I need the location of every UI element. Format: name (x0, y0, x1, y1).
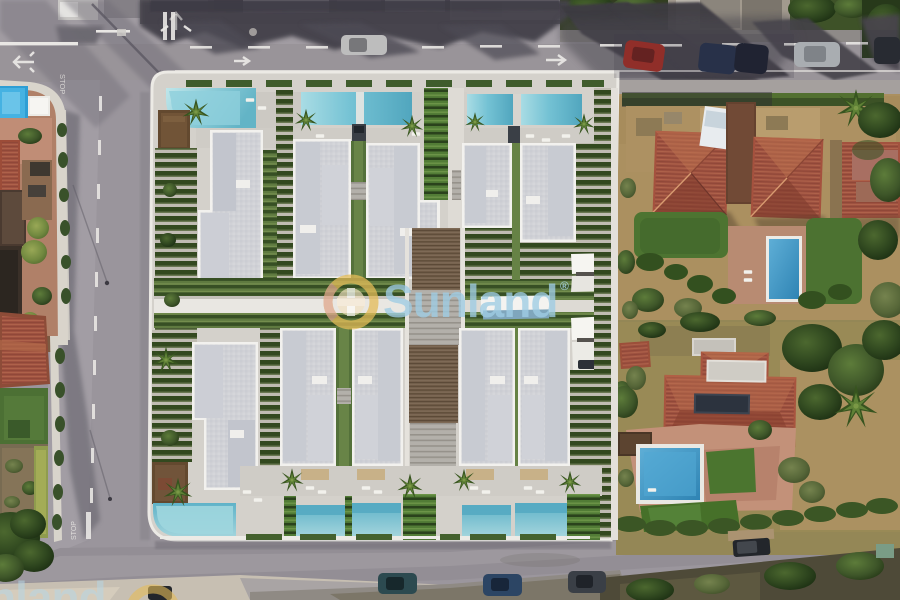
svg-text:nland: nland (0, 572, 106, 600)
svg-text:STOP: STOP (71, 521, 78, 540)
svg-text:®: ® (560, 279, 569, 293)
svg-text:STOP: STOP (58, 74, 67, 94)
svg-text:Sunland: Sunland (383, 275, 557, 327)
